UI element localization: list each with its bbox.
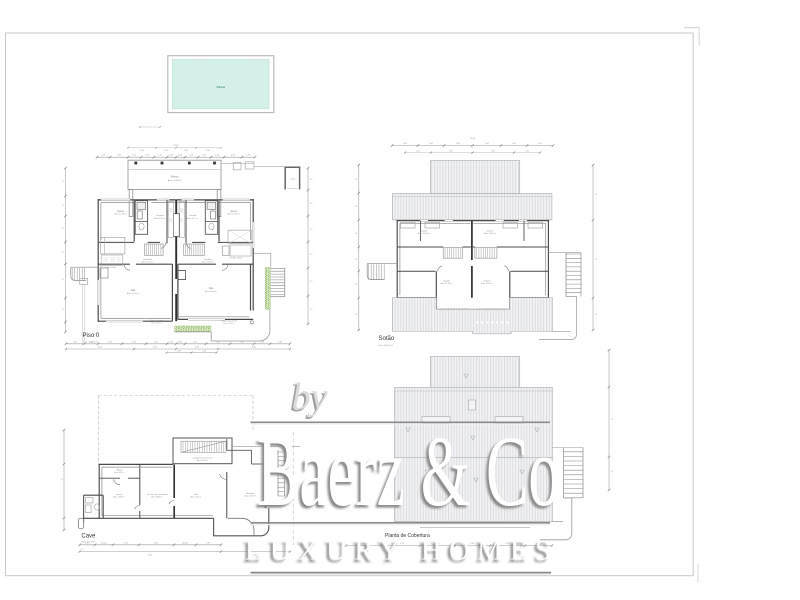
svg-text:Área: 11,00 m²: Área: 11,00 m²	[190, 496, 201, 499]
svg-text:Área: 13,50 m²: Área: 13,50 m²	[484, 232, 496, 235]
svg-text:2.4: 2.4	[310, 281, 312, 283]
svg-text:16.00: 16.00	[470, 138, 476, 140]
svg-text:Área: 44,73 m²: Área: 44,73 m²	[244, 495, 256, 498]
svg-text:Quarto: Quarto	[117, 210, 125, 213]
svg-text:3.94: 3.94	[206, 150, 210, 152]
svg-text:2.80: 2.80	[485, 143, 489, 145]
svg-text:Área: 18,00 m²: Área: 18,00 m²	[197, 459, 209, 462]
svg-text:Quarto: Quarto	[443, 280, 450, 283]
svg-text:1.40: 1.40	[89, 341, 93, 343]
svg-text:2.6: 2.6	[355, 284, 357, 286]
svg-text:2.9: 2.9	[611, 471, 613, 473]
svg-text:I.S. Área: 3,80m²: I.S. Área: 3,80m²	[104, 266, 117, 269]
svg-text:Quarto: Quarto	[487, 229, 494, 232]
svg-text:2.81: 2.81	[184, 150, 188, 152]
svg-text:Quarto: Quarto	[116, 493, 123, 496]
svg-text:2.1: 2.1	[62, 228, 64, 230]
svg-text:1.40: 1.40	[85, 542, 89, 544]
svg-text:Área: 9,67 m²: Área: 9,67 m²	[155, 217, 166, 220]
svg-text:Sala: Sala	[131, 290, 136, 292]
svg-text:[2.08]: [2.08]	[183, 542, 188, 544]
svg-text:2.60: 2.60	[512, 143, 516, 145]
svg-text:2.45: 2.45	[206, 542, 210, 544]
svg-text:LUXURY HOMES: LUXURY HOMES	[245, 536, 557, 567]
svg-text:Quarto: Quarto	[484, 280, 491, 283]
svg-text:Área: 11,90 m²: Área: 11,90 m²	[142, 261, 154, 264]
svg-text:Piscina: Piscina	[217, 85, 226, 89]
svg-text:2.40: 2.40	[240, 341, 244, 343]
svg-text:Telheiro: Telheiro	[170, 176, 179, 179]
svg-text:Área: 18,03 m²: Área: 18,03 m²	[151, 496, 163, 499]
svg-text:2.6: 2.6	[355, 179, 357, 181]
svg-text:2.10: 2.10	[193, 341, 197, 343]
svg-text:1.85: 1.85	[278, 341, 282, 343]
svg-text:3.94: 3.94	[140, 150, 144, 152]
svg-text:Área: 72,88 m²: Área: 72,88 m²	[223, 322, 235, 325]
svg-text:Zona técnica e lavandaria: Zona técnica e lavandaria	[147, 493, 168, 496]
svg-text:2.10: 2.10	[538, 143, 542, 145]
svg-text:Sala: Sala	[209, 288, 214, 290]
svg-text:Área: 11,10 m²: Área: 11,10 m²	[481, 282, 493, 285]
svg-text:5.2: 5.2	[595, 259, 597, 261]
svg-text:Área: 26,95 m²: Área: 26,95 m²	[151, 321, 163, 324]
svg-text:1.90: 1.90	[416, 150, 420, 152]
svg-text:2.80: 2.80	[456, 143, 460, 145]
svg-text:1.95: 1.95	[124, 542, 128, 544]
svg-text:2.4: 2.4	[310, 179, 312, 181]
svg-text:Área: 15,98 m²: Área: 15,98 m²	[113, 496, 125, 499]
svg-text:3.60: 3.60	[449, 150, 453, 152]
svg-text:2.6: 2.6	[355, 259, 357, 261]
svg-text:8.00: 8.00	[252, 347, 256, 349]
svg-text:2.4: 2.4	[310, 229, 312, 231]
svg-text:Área: 11,90 m²: Área: 11,90 m²	[202, 261, 214, 264]
svg-text:0.90: 0.90	[169, 341, 173, 343]
svg-text:2.10: 2.10	[154, 341, 158, 343]
svg-text:4.10: 4.10	[195, 347, 199, 349]
svg-text:2.1: 2.1	[62, 279, 64, 281]
svg-text:2.6: 2.6	[355, 233, 357, 235]
svg-text:6.4: 6.4	[81, 549, 84, 551]
svg-text:Quarto: Quarto	[230, 210, 238, 213]
svg-text:6.1: 6.1	[611, 419, 613, 421]
svg-text:0.90: 0.90	[178, 341, 182, 343]
svg-text:2.60: 2.60	[429, 143, 433, 145]
svg-text:Vestíbulo: Vestíbulo	[204, 258, 214, 261]
svg-text:2.40: 2.40	[216, 341, 220, 343]
svg-text:1.40: 1.40	[260, 341, 264, 343]
svg-text:2.40: 2.40	[132, 341, 136, 343]
svg-text:Sotão: Sotão	[379, 336, 395, 342]
svg-text:4.10: 4.10	[153, 347, 157, 349]
svg-text:2.1: 2.1	[62, 309, 64, 311]
svg-text:3.43: 3.43	[177, 350, 181, 352]
svg-text:Área: 13,50 m²: Área: 13,50 m²	[418, 232, 430, 235]
svg-text:Área: 68,60 m²: Área: 68,60 m²	[379, 344, 394, 347]
svg-text:Área: 12,50 m²: Área: 12,50 m²	[115, 213, 127, 216]
svg-text:Área: 11,10 m²: Área: 11,10 m²	[441, 282, 453, 285]
svg-text:5.2: 5.2	[595, 314, 597, 316]
svg-text:Área: 12,50 m²: Área: 12,50 m²	[228, 213, 240, 216]
svg-text:Área: 24,90 m²: Área: 24,90 m²	[205, 290, 217, 293]
svg-text:3.43: 3.43	[202, 350, 206, 352]
svg-text:2.81: 2.81	[164, 150, 168, 152]
svg-text:c. lixos: c. lixos	[290, 179, 296, 181]
svg-text:Compartimento Técnico: Compartimento Técnico	[192, 457, 212, 460]
svg-text:2.10: 2.10	[403, 143, 407, 145]
svg-text:Área: 6,07 m²: Área: 6,07 m²	[114, 471, 125, 474]
svg-text:2.6: 2.6	[355, 206, 357, 208]
svg-text:Área: 24,70 m²: Área: 24,70 m²	[127, 292, 139, 295]
svg-text:1.90: 1.90	[525, 150, 529, 152]
svg-text:2.1: 2.1	[62, 181, 64, 183]
svg-text:8.00: 8.00	[98, 347, 102, 349]
svg-text:I.S. Área: 3,80m²: I.S. Área: 3,80m²	[230, 256, 243, 259]
svg-text:2.6: 2.6	[355, 314, 357, 316]
svg-text:Piso 0: Piso 0	[83, 333, 100, 339]
svg-text:Vestíbulo: Vestíbulo	[143, 258, 153, 261]
svg-text:Cave: Cave	[81, 534, 96, 540]
svg-text:2.40: 2.40	[108, 341, 112, 343]
svg-text:2.4: 2.4	[310, 254, 312, 256]
svg-text:5.2: 5.2	[595, 194, 597, 196]
svg-text:Quarto: Quarto	[421, 229, 428, 232]
svg-text:by: by	[292, 376, 328, 418]
svg-text:Área: 9,67 m²: Área: 9,67 m²	[187, 217, 198, 220]
svg-text:2.4: 2.4	[310, 309, 312, 311]
svg-text:14.05: 14.05	[148, 554, 153, 556]
svg-text:2.4: 2.4	[310, 203, 312, 205]
svg-text:2.1: 2.1	[62, 205, 64, 207]
svg-text:3.60: 3.60	[491, 150, 495, 152]
svg-text:5.4: 5.4	[60, 479, 62, 481]
svg-text:3.45: 3.45	[154, 542, 158, 544]
svg-text:1.85: 1.85	[73, 341, 77, 343]
svg-text:[2.04]: [2.04]	[102, 542, 107, 544]
svg-text:2.1: 2.1	[62, 252, 64, 254]
svg-text:Baerz & Co: Baerz & Co	[257, 415, 560, 527]
svg-text:Área: 28,00 m²: Área: 28,00 m²	[168, 179, 182, 182]
